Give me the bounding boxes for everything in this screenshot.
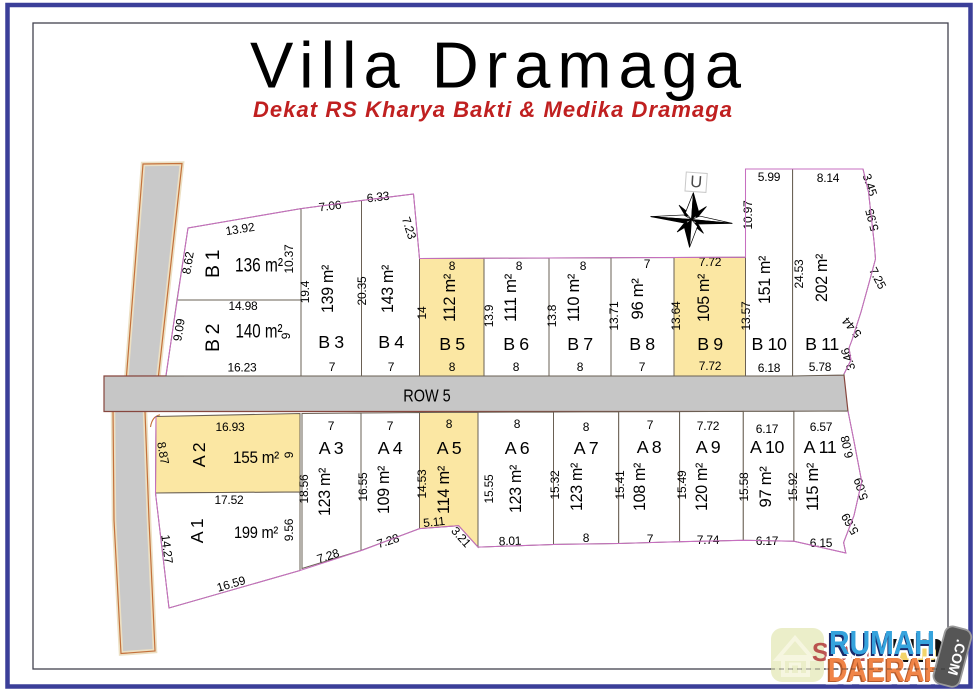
svg-text:A 4: A 4 bbox=[378, 438, 403, 458]
svg-text:97 m²: 97 m² bbox=[757, 466, 775, 508]
svg-text:8: 8 bbox=[514, 417, 521, 431]
svg-text:5.78: 5.78 bbox=[809, 360, 832, 374]
svg-text:B 9: B 9 bbox=[697, 334, 723, 354]
svg-text:B 5: B 5 bbox=[439, 334, 465, 354]
svg-text:123 m²: 123 m² bbox=[568, 462, 586, 511]
svg-text:U: U bbox=[690, 173, 703, 192]
svg-text:13.71: 13.71 bbox=[607, 301, 621, 331]
svg-text:7: 7 bbox=[329, 360, 336, 374]
svg-text:143 m²: 143 m² bbox=[379, 264, 397, 313]
svg-text:B 4: B 4 bbox=[378, 332, 404, 352]
svg-text:A 5: A 5 bbox=[437, 438, 462, 458]
svg-text:139 m²: 139 m² bbox=[319, 264, 337, 313]
svg-text:7: 7 bbox=[644, 257, 651, 271]
svg-text:9.56: 9.56 bbox=[282, 518, 296, 541]
svg-text:8: 8 bbox=[449, 259, 456, 273]
svg-text:15.32: 15.32 bbox=[548, 470, 562, 500]
svg-text:13.57: 13.57 bbox=[739, 301, 753, 331]
svg-text:16.93: 16.93 bbox=[215, 420, 245, 434]
svg-text:20.35: 20.35 bbox=[355, 276, 369, 306]
svg-text:140 m²: 140 m² bbox=[236, 322, 283, 343]
svg-text:8: 8 bbox=[449, 360, 456, 374]
svg-text:7.74: 7.74 bbox=[697, 533, 720, 547]
svg-text:A 9: A 9 bbox=[696, 437, 721, 457]
svg-text:105 m²: 105 m² bbox=[695, 273, 713, 322]
svg-text:24.53: 24.53 bbox=[792, 259, 806, 289]
svg-text:8: 8 bbox=[577, 360, 584, 374]
svg-text:108 m²: 108 m² bbox=[631, 462, 649, 511]
svg-text:16.55: 16.55 bbox=[356, 472, 370, 502]
svg-text:A 3: A 3 bbox=[319, 438, 344, 458]
svg-text:136 m²: 136 m² bbox=[235, 256, 283, 277]
svg-text:7: 7 bbox=[328, 419, 335, 433]
svg-text:ROW 5: ROW 5 bbox=[403, 386, 451, 406]
svg-text:96 m²: 96 m² bbox=[629, 278, 647, 320]
svg-text:18.56: 18.56 bbox=[297, 474, 311, 504]
svg-text:B 1: B 1 bbox=[202, 250, 224, 278]
svg-text:10.97: 10.97 bbox=[741, 200, 755, 230]
svg-text:13.64: 13.64 bbox=[669, 301, 683, 331]
svg-text:110 m²: 110 m² bbox=[565, 273, 583, 322]
svg-text:202 m²: 202 m² bbox=[813, 253, 831, 302]
svg-text:15.58: 15.58 bbox=[737, 472, 751, 502]
svg-text:A 7: A 7 bbox=[574, 438, 599, 458]
svg-text:13.9: 13.9 bbox=[482, 304, 496, 327]
svg-text:B 10: B 10 bbox=[752, 334, 787, 354]
svg-text:7.72: 7.72 bbox=[697, 419, 720, 433]
svg-text:8: 8 bbox=[583, 420, 590, 434]
svg-text:120 m²: 120 m² bbox=[693, 462, 711, 511]
svg-text:8: 8 bbox=[513, 360, 520, 374]
svg-text:B 11: B 11 bbox=[805, 334, 839, 354]
svg-text:B 3: B 3 bbox=[318, 332, 344, 352]
svg-text:8: 8 bbox=[583, 531, 590, 545]
svg-text:15.92: 15.92 bbox=[786, 472, 800, 502]
svg-text:8.14: 8.14 bbox=[817, 171, 840, 185]
svg-text:8: 8 bbox=[446, 417, 453, 431]
svg-text:7: 7 bbox=[639, 360, 646, 374]
svg-text:7: 7 bbox=[388, 360, 395, 374]
svg-text:Dekat RS Kharya Bakti & Medika: Dekat RS Kharya Bakti & Medika Dramaga bbox=[253, 97, 732, 122]
svg-text:7: 7 bbox=[647, 532, 654, 546]
svg-text:9: 9 bbox=[282, 451, 296, 458]
svg-text:14.98: 14.98 bbox=[228, 299, 258, 313]
svg-text:B 8: B 8 bbox=[629, 334, 655, 354]
svg-text:6.18: 6.18 bbox=[758, 361, 781, 375]
svg-text:A 10: A 10 bbox=[750, 437, 785, 457]
svg-text:109 m²: 109 m² bbox=[375, 465, 393, 514]
svg-text:123 m²: 123 m² bbox=[507, 464, 525, 513]
svg-text:115 m²: 115 m² bbox=[804, 462, 822, 511]
svg-text:A 6: A 6 bbox=[505, 438, 530, 458]
svg-text:13.8: 13.8 bbox=[545, 304, 559, 327]
svg-text:7.72: 7.72 bbox=[699, 359, 722, 373]
svg-text:9: 9 bbox=[279, 332, 293, 339]
svg-text:8: 8 bbox=[516, 259, 523, 273]
svg-text:7: 7 bbox=[647, 418, 654, 432]
svg-text:Villa Dramaga: Villa Dramaga bbox=[250, 29, 742, 102]
svg-text:114 m²: 114 m² bbox=[435, 465, 453, 514]
svg-text:10.37: 10.37 bbox=[282, 244, 296, 274]
svg-text:111 m²: 111 m² bbox=[502, 273, 520, 322]
svg-text:6.17: 6.17 bbox=[756, 422, 779, 436]
svg-text:17.52: 17.52 bbox=[214, 493, 244, 507]
svg-text:A 1: A 1 bbox=[187, 518, 207, 543]
svg-text:A 8: A 8 bbox=[637, 437, 662, 457]
svg-text:15.41: 15.41 bbox=[613, 470, 627, 500]
svg-text:B 6: B 6 bbox=[503, 334, 529, 354]
svg-text:16.23: 16.23 bbox=[227, 361, 257, 375]
svg-text:6.57: 6.57 bbox=[810, 420, 833, 434]
svg-text:8: 8 bbox=[580, 259, 587, 273]
svg-text:155 m²: 155 m² bbox=[233, 449, 280, 467]
svg-text:19.4: 19.4 bbox=[298, 280, 312, 303]
svg-text:7: 7 bbox=[387, 419, 394, 433]
svg-text:15.55: 15.55 bbox=[482, 474, 496, 504]
svg-text:15.49: 15.49 bbox=[675, 470, 689, 500]
svg-text:14: 14 bbox=[415, 306, 429, 319]
svg-text:112 m²: 112 m² bbox=[441, 273, 459, 322]
svg-text:B 2: B 2 bbox=[202, 324, 224, 352]
svg-text:A 11: A 11 bbox=[804, 437, 837, 457]
svg-text:B 7: B 7 bbox=[567, 334, 593, 354]
svg-text:123 m²: 123 m² bbox=[316, 467, 334, 516]
svg-text:199 m²: 199 m² bbox=[234, 524, 279, 542]
svg-text:5.99: 5.99 bbox=[758, 170, 781, 184]
svg-text:A 2: A 2 bbox=[189, 443, 209, 468]
svg-text:14.53: 14.53 bbox=[415, 469, 429, 499]
svg-text:151 m²: 151 m² bbox=[756, 255, 774, 304]
